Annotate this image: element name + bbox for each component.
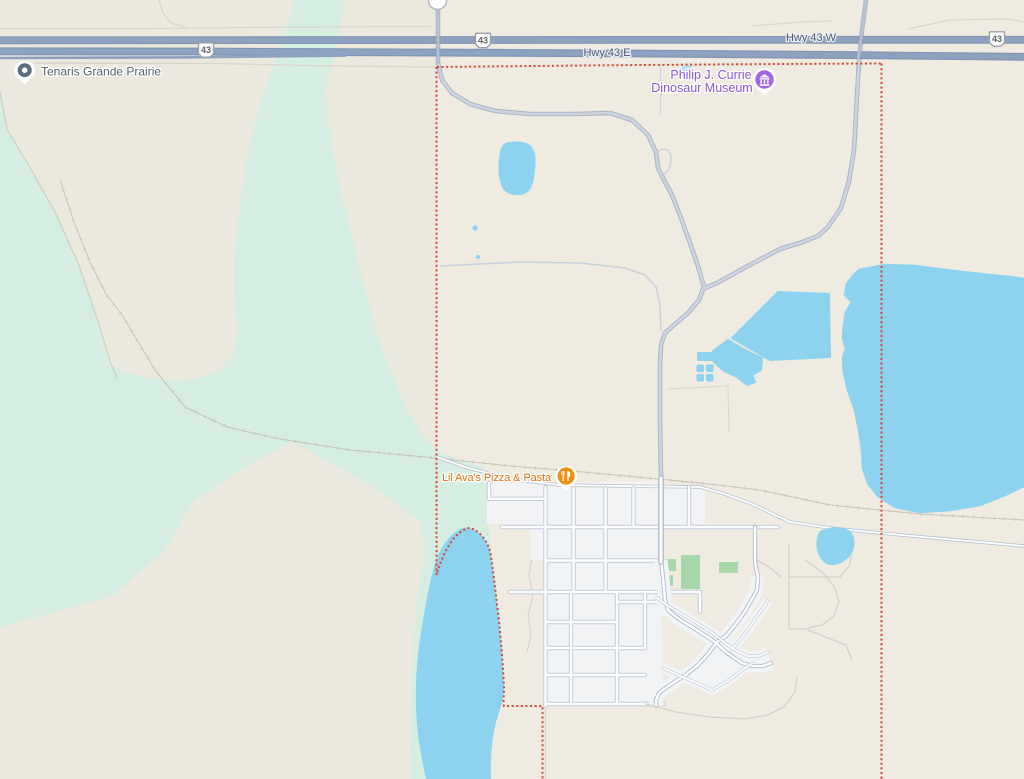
svg-text:43: 43 <box>478 36 488 46</box>
svg-text:Hwy 43 W: Hwy 43 W <box>786 32 837 44</box>
svg-text:43: 43 <box>992 34 1002 44</box>
svg-text:Lil Ava's Pizza & Pasta: Lil Ava's Pizza & Pasta <box>442 472 552 484</box>
svg-text:Hwy 43 E: Hwy 43 E <box>583 47 630 59</box>
svg-text:Tenaris Grande Prairie: Tenaris Grande Prairie <box>41 65 161 79</box>
svg-text:Dinosaur Museum: Dinosaur Museum <box>651 81 752 95</box>
svg-text:43: 43 <box>201 45 211 55</box>
svg-text:Philip J. Currie: Philip J. Currie <box>670 68 751 82</box>
